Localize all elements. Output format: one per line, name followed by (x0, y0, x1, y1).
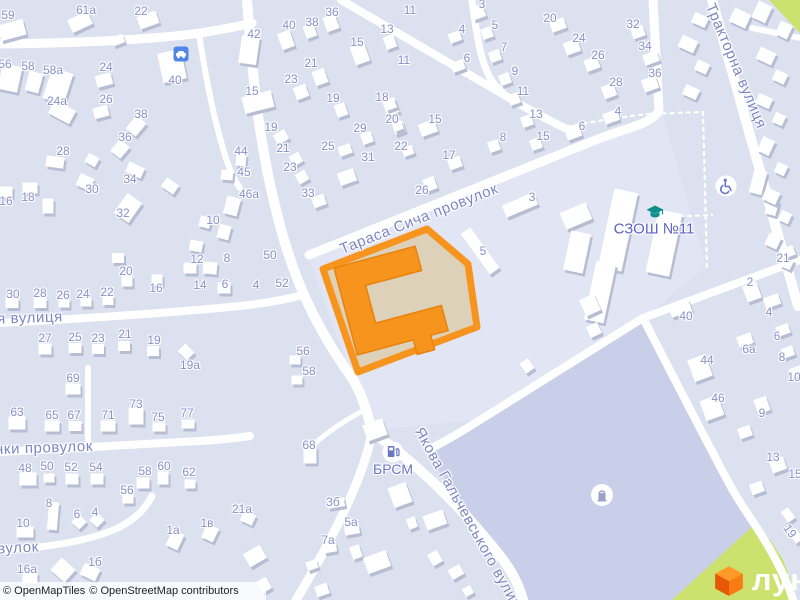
building (43, 67, 74, 104)
accessible-icon[interactable] (715, 175, 737, 197)
building (235, 154, 246, 167)
building (126, 115, 147, 136)
building (81, 298, 92, 307)
building (158, 472, 169, 485)
building (69, 421, 82, 431)
monument-icon[interactable] (591, 484, 614, 507)
lun-logo-text: лун (752, 562, 800, 598)
building (34, 298, 47, 308)
building (184, 263, 197, 274)
building (112, 253, 124, 263)
building (221, 169, 234, 180)
building (152, 275, 163, 286)
building (122, 276, 133, 287)
building (17, 527, 34, 538)
car-icon[interactable] (174, 47, 189, 62)
building (153, 423, 166, 432)
building (292, 376, 303, 385)
building (101, 421, 116, 432)
building (6, 298, 19, 308)
building (39, 344, 52, 355)
building (103, 295, 114, 305)
building (304, 447, 317, 464)
road (0, 436, 250, 452)
map-tiles (0, 0, 800, 600)
building (92, 344, 104, 354)
building (43, 199, 54, 214)
building (203, 261, 218, 274)
attribution-bar: © OpenMapTiles © OpenStreetMap contribut… (0, 582, 266, 600)
road (306, 408, 368, 452)
building (9, 417, 26, 430)
fuel-icon[interactable] (382, 441, 404, 463)
attribution-osm-link[interactable]: © OpenStreetMap contributors (89, 585, 238, 597)
attribution-openmaptiles-link[interactable]: © OpenMapTiles (3, 585, 85, 597)
building (44, 474, 55, 483)
building (69, 343, 82, 353)
lun-cube-icon (713, 564, 745, 596)
building (20, 473, 37, 486)
building (129, 408, 144, 425)
building (91, 474, 104, 485)
building (182, 420, 195, 429)
building (185, 480, 196, 489)
building (23, 183, 38, 194)
building (218, 283, 231, 294)
building (0, 187, 13, 198)
map-canvas[interactable]: 5961а22565858а244024а2638362842403836131… (0, 0, 800, 600)
building (59, 299, 70, 308)
building (66, 474, 79, 485)
building (290, 356, 301, 365)
building (123, 495, 134, 504)
building (118, 341, 130, 351)
road (0, 23, 252, 44)
school-icon[interactable] (646, 205, 665, 220)
building (147, 346, 159, 356)
building (45, 421, 60, 432)
lun-logo: лун (713, 562, 800, 598)
road (199, 34, 240, 188)
building (114, 193, 143, 223)
building (66, 384, 81, 395)
building (137, 478, 150, 489)
footpath-dotted (703, 112, 707, 268)
building (189, 239, 204, 252)
